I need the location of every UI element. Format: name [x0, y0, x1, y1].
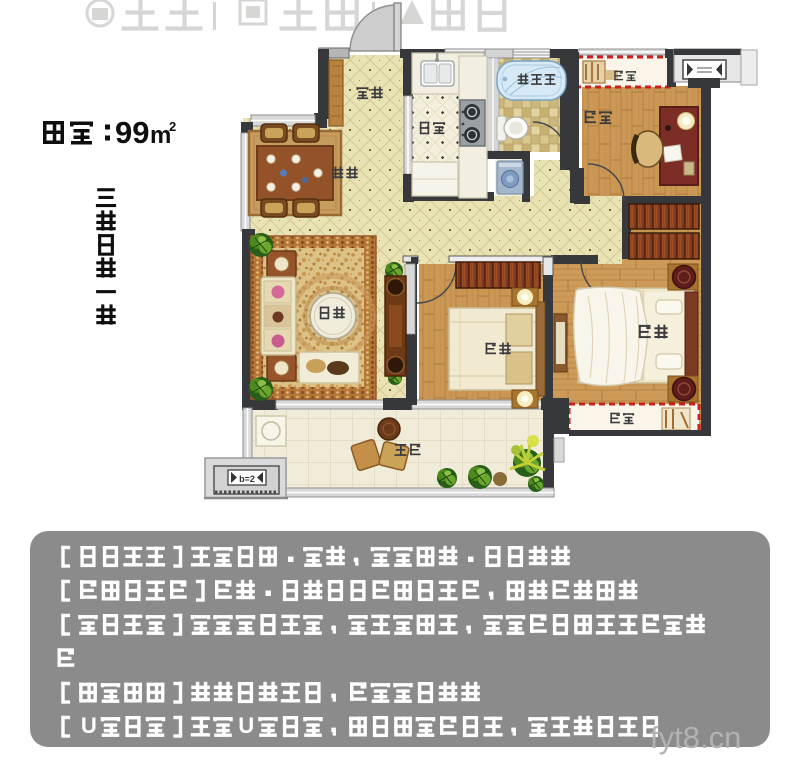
svg-text:fyt8.cn: fyt8.cn: [650, 720, 741, 755]
svg-text:b=2: b=2: [239, 474, 255, 484]
svg-text:2: 2: [169, 119, 176, 134]
svg-text:U: U: [81, 713, 97, 738]
svg-text:99: 99: [115, 115, 149, 150]
svg-text:U: U: [238, 713, 254, 738]
